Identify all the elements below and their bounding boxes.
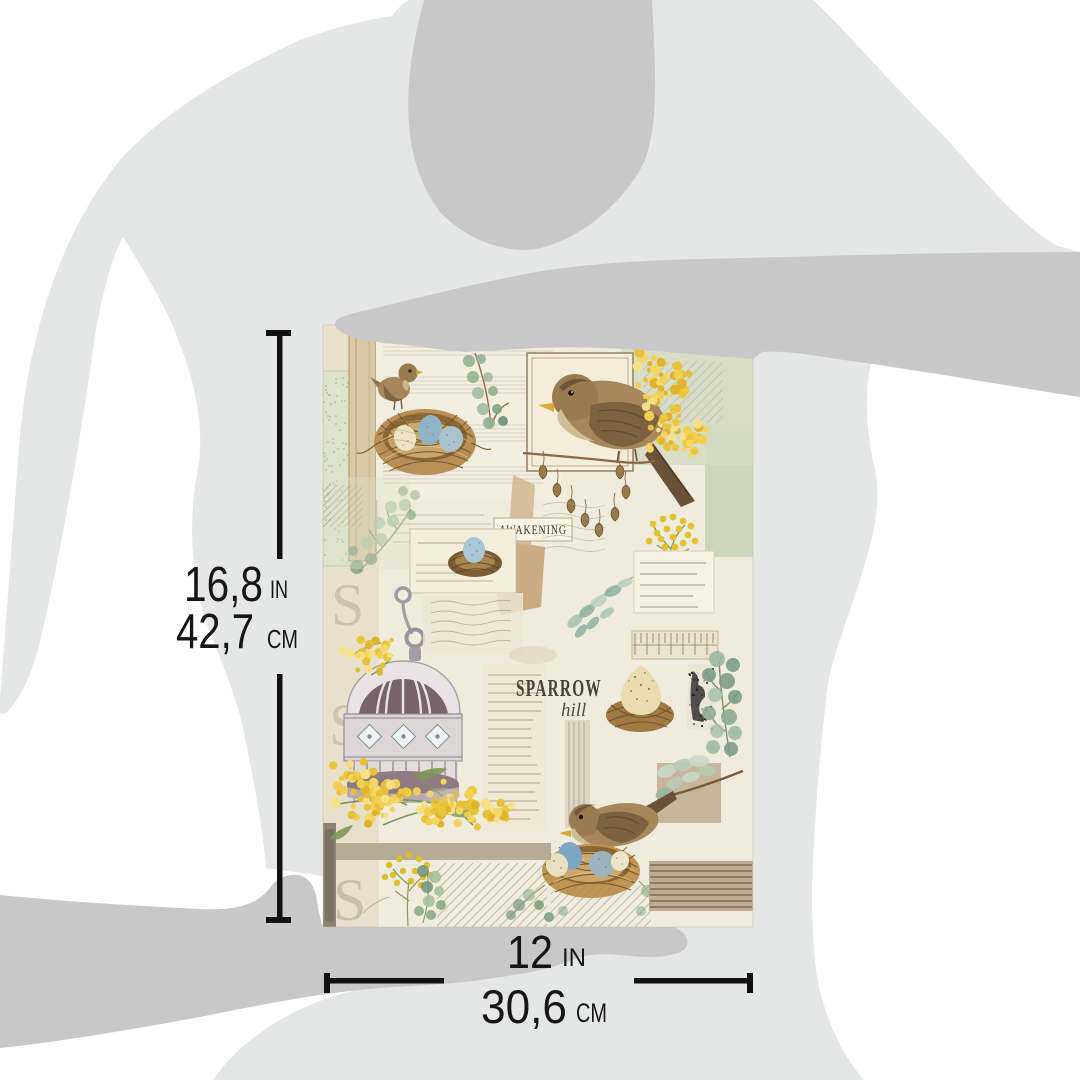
svg-text:hill: hill [561,700,586,721]
svg-text:S: S [331,572,364,638]
svg-text:IN: IN [562,944,586,972]
svg-text:SPARROW: SPARROW [516,676,602,702]
svg-text:16,8: 16,8 [184,558,263,612]
svg-text:30,6: 30,6 [481,980,567,1033]
svg-text:CM: CM [267,624,298,654]
svg-text:S: S [333,867,366,933]
svg-text:42,7: 42,7 [176,605,254,659]
svg-text:CM: CM [576,998,607,1028]
svg-text:IN: IN [270,576,288,604]
svg-text:12: 12 [507,926,553,978]
